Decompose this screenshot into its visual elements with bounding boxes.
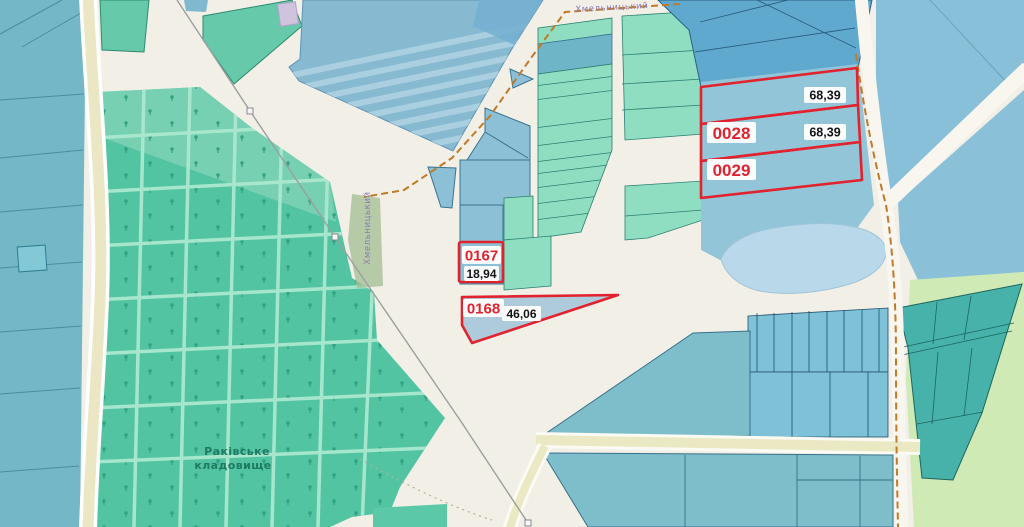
parcel-0028-id-label: 0028 [713, 124, 751, 143]
parcel-0168-area-label: 46,06 [506, 307, 536, 321]
area-label-north-strip: 68,39 [809, 89, 840, 103]
parcel-0167-id-label: 0167 [465, 248, 498, 265]
power-tower-icon [247, 108, 253, 114]
power-tower-icon [332, 234, 338, 240]
small-cyan-parcel [17, 245, 47, 272]
parcel-0028-area-label: 68,39 [809, 126, 840, 140]
street-label-side: Хмельницький [363, 191, 373, 264]
parcel-0168-id-label: 0168 [467, 301, 500, 318]
cemetery-label-line2: кладовище [194, 459, 271, 472]
map-canvas[interactable]: Раківське кладовище [0, 0, 1024, 527]
small-lavender-building [278, 2, 299, 26]
south-green-strip [373, 504, 447, 527]
map-viewport[interactable]: Раківське кладовище [0, 0, 1024, 527]
parcel-0167-area-label: 18,94 [466, 267, 496, 281]
bottom-parcel-grid [748, 308, 888, 437]
cemetery-label-line1: Раківське [204, 445, 270, 458]
west-blue-parcels [0, 0, 86, 527]
parcel-0029-id-label: 0029 [713, 161, 751, 180]
power-tower-icon [525, 520, 531, 526]
